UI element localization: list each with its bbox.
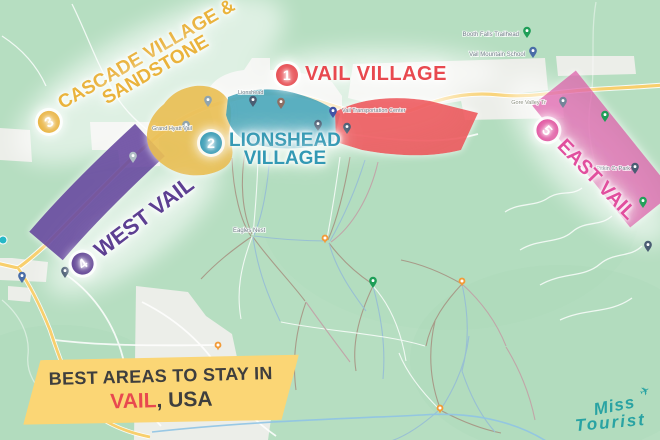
map-pin-teal bbox=[0, 236, 7, 244]
area-label-text: VAIL VILLAGE bbox=[305, 63, 447, 86]
area-label-line2: VILLAGE bbox=[244, 150, 326, 168]
map-label-grand-hyatt: Grand Hyatt Vail bbox=[152, 126, 192, 132]
map-label-gore-valley: Gore Valley Tr bbox=[511, 100, 546, 106]
map-label-mountain-school: Vail Mountain School bbox=[469, 52, 525, 58]
area-label-vail-village: 1 VAIL VILLAGE bbox=[276, 63, 447, 86]
area-number-badge: 2 bbox=[200, 132, 222, 154]
title-badge-line2: VAIL, USA bbox=[35, 386, 288, 417]
title-badge-city: VAIL bbox=[110, 389, 157, 413]
map-label-eagles-nest: Eagles Nest bbox=[233, 228, 266, 234]
area-number-badge: 1 bbox=[276, 64, 298, 86]
logo-word-tourist: Tourist bbox=[574, 412, 646, 433]
area-label-text: LIONSHEAD VILLAGE bbox=[229, 132, 341, 168]
title-badge-inner: BEST AREAS TO STAY IN VAIL, USA bbox=[35, 363, 288, 417]
title-badge-suffix: , USA bbox=[156, 388, 213, 412]
map-label-lionshead-town: Lionshead bbox=[238, 90, 263, 96]
title-badge: BEST AREAS TO STAY IN VAIL, USA bbox=[23, 353, 299, 426]
vail-areas-map: Booth Falls Trailhead Vail Mountain Scho… bbox=[0, 0, 660, 440]
miss-tourist-logo: ✈ Miss Tourist bbox=[575, 399, 646, 430]
area-label-lionshead-village: 2 LIONSHEAD VILLAGE bbox=[200, 132, 341, 168]
map-label-booth-falls: Booth Falls Trailhead bbox=[463, 32, 519, 38]
map-label-transportation: Vail Transportation Center bbox=[342, 108, 406, 114]
